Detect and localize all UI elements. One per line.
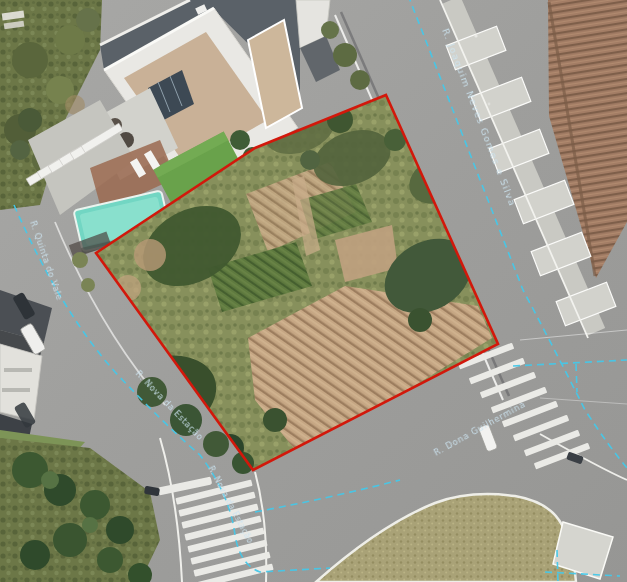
satellite-map: R. Joaquim Neves Gomes e Silva R. Quinta… <box>0 0 627 582</box>
map-canvas[interactable]: R. Joaquim Neves Gomes e Silva R. Quinta… <box>0 0 627 582</box>
